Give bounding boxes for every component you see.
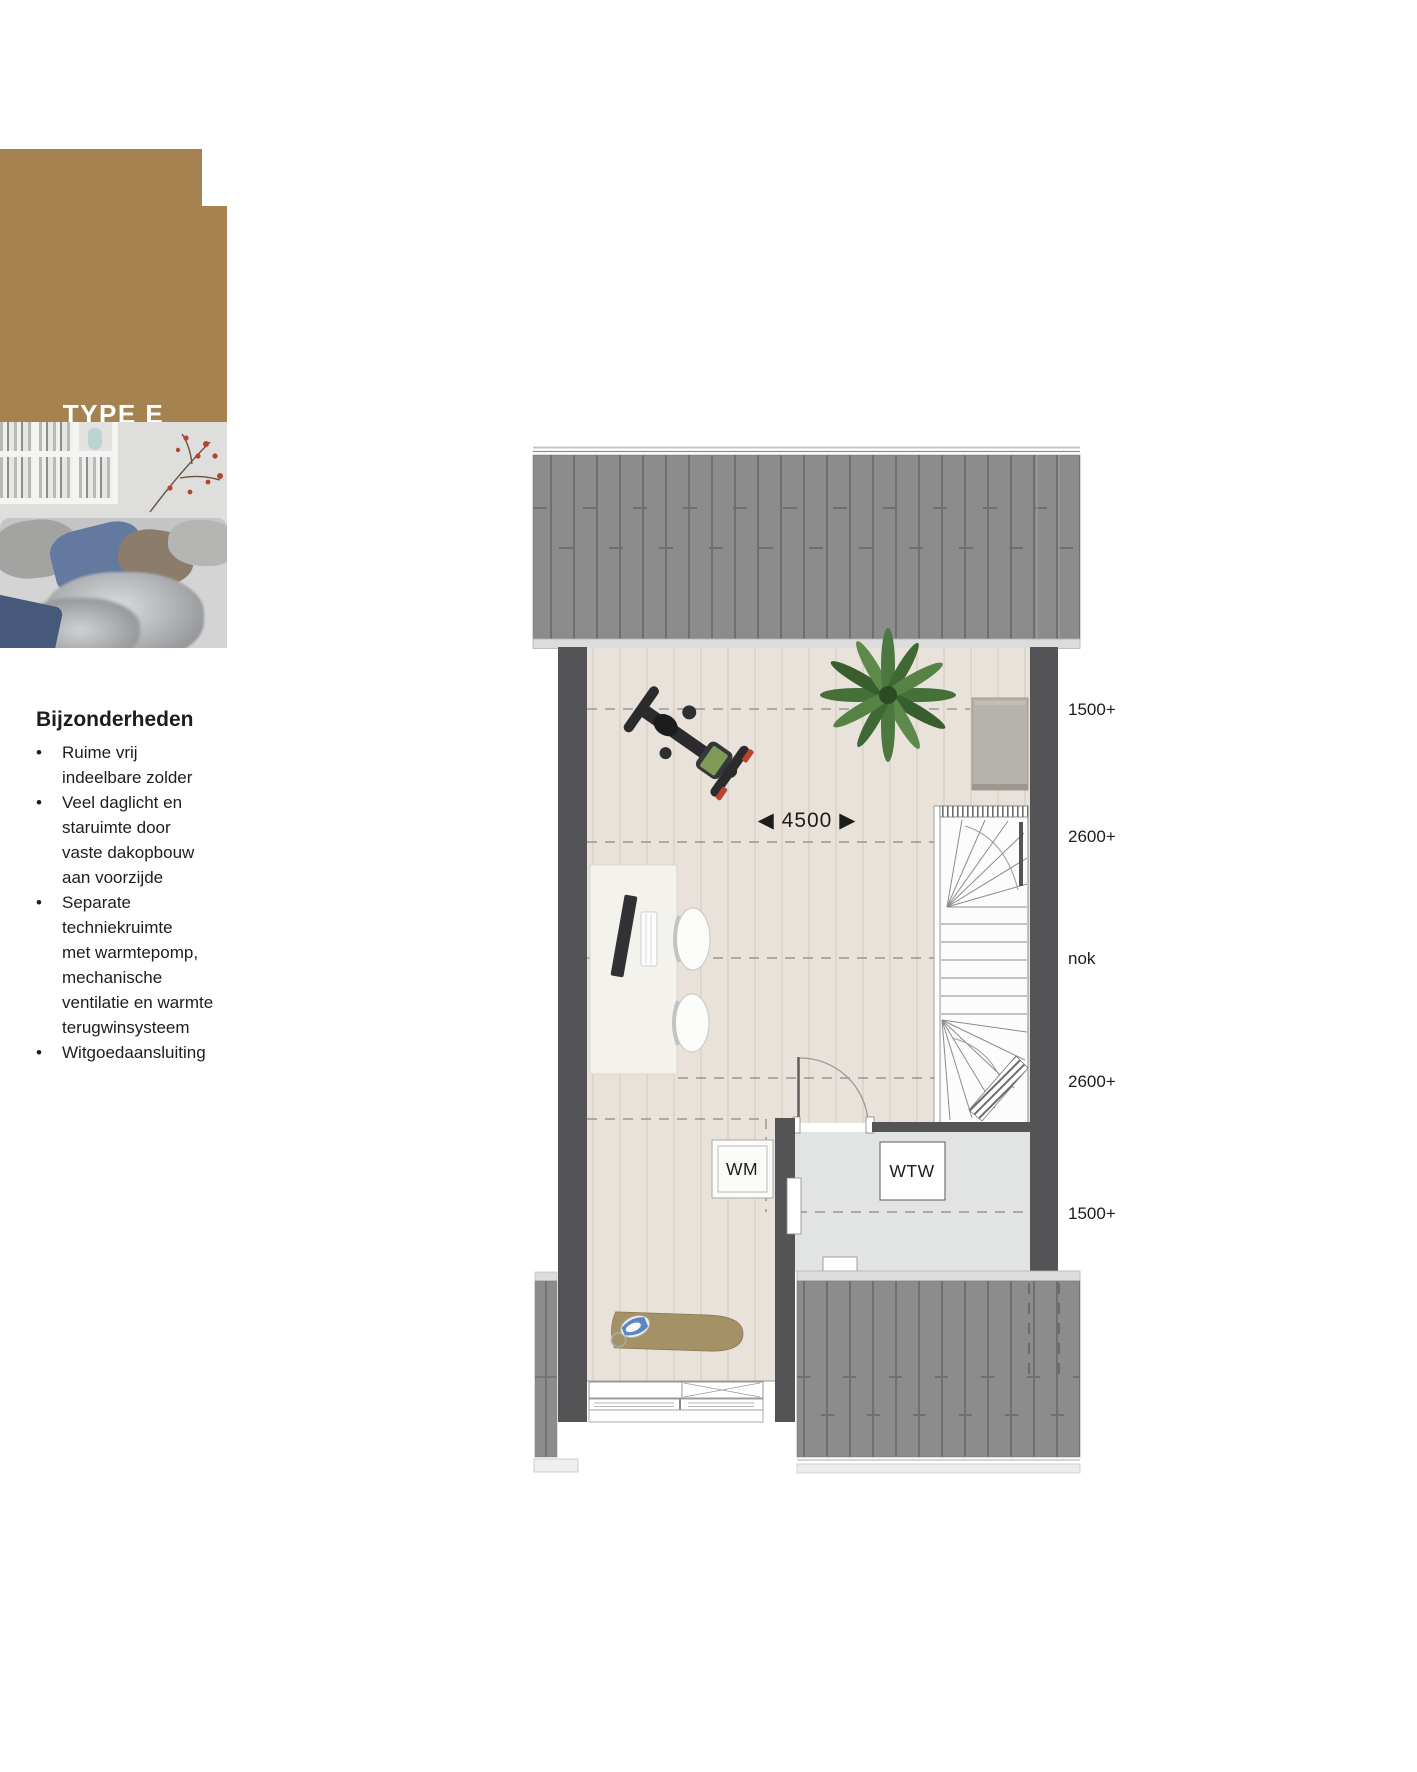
height-labels: 1500+ 2600+ nok 2600+ 1500+ [1068, 700, 1116, 1223]
technique-room-left-wall [775, 1118, 795, 1422]
office-chair [676, 908, 710, 970]
dormer-frame-band [589, 1399, 763, 1410]
right-wall [1030, 647, 1058, 1271]
floor-plan: ◀ 4500 ▶ [0, 0, 1417, 1772]
left-wall [558, 647, 587, 1422]
wm-label: WM [726, 1159, 758, 1179]
stair-balustrade [940, 806, 1028, 817]
dormer-front [587, 1381, 775, 1422]
rear-roof [533, 455, 1080, 649]
height-label: 2600+ [1068, 1072, 1116, 1091]
washing-machine: WM [712, 1140, 773, 1198]
dormer-window-band [589, 1382, 763, 1398]
dimension-4500: ◀ 4500 ▶ [758, 809, 857, 832]
technique-room-top-wall [872, 1122, 1030, 1132]
rear-roof-ridge-lines [533, 448, 1080, 452]
wall-panel [787, 1178, 801, 1234]
gray-mat [972, 698, 1028, 790]
height-label: 2600+ [1068, 827, 1116, 846]
stair-wall [934, 806, 940, 1123]
dormer-sill [589, 1410, 763, 1422]
stair-handrail [1019, 822, 1023, 886]
height-label: 1500+ [1068, 700, 1116, 719]
vent [823, 1257, 857, 1271]
keyboard [641, 912, 657, 966]
height-label: 1500+ [1068, 1204, 1116, 1223]
ironing-board [611, 1310, 744, 1352]
office-chair [675, 994, 709, 1052]
rear-roof-eaves [533, 639, 1080, 649]
staircase [934, 806, 1028, 1123]
front-roof-right [797, 1271, 1080, 1473]
wtw-unit: WTW [880, 1142, 945, 1200]
height-label: nok [1068, 949, 1096, 968]
wtw-label: WTW [889, 1161, 934, 1181]
